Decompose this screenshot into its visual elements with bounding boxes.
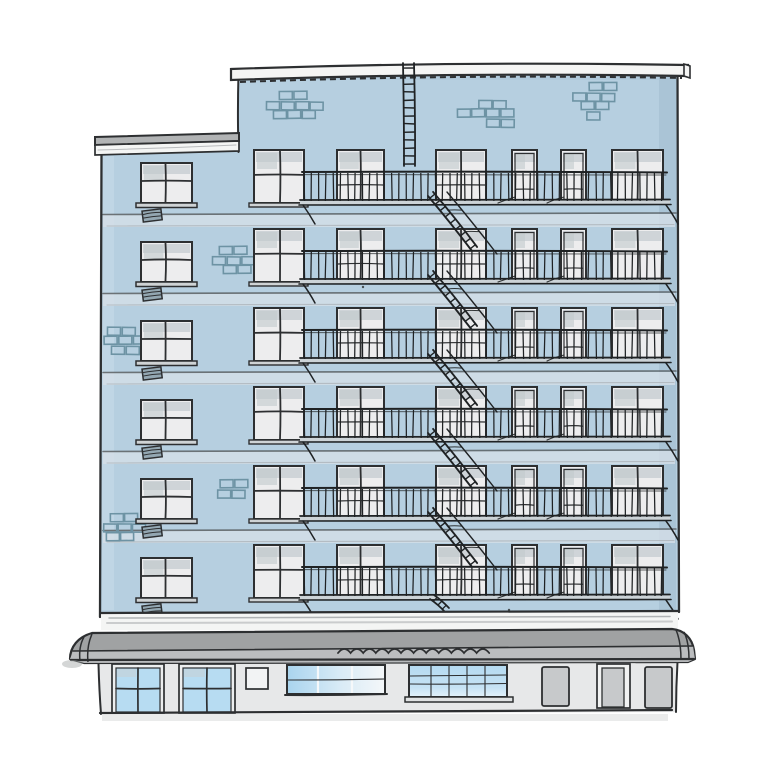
vent-body bbox=[142, 525, 162, 538]
baluster bbox=[632, 410, 633, 438]
glass-smudge bbox=[117, 669, 136, 677]
window-shade-blob bbox=[515, 390, 525, 406]
baluster bbox=[523, 252, 524, 280]
balcony-rail bbox=[302, 330, 667, 331]
baluster bbox=[392, 489, 393, 517]
vent-box bbox=[142, 367, 162, 380]
baluster bbox=[325, 410, 326, 438]
baluster bbox=[457, 252, 458, 280]
window-shade-blob bbox=[615, 232, 635, 248]
ink-speck bbox=[508, 609, 510, 611]
left-wing-cornice bbox=[95, 133, 239, 155]
balcony-rail bbox=[302, 251, 667, 252]
baluster bbox=[479, 331, 480, 359]
storefront-door bbox=[645, 667, 672, 708]
window-shade-blob bbox=[340, 311, 359, 327]
baluster bbox=[457, 489, 458, 517]
window-shade-blob bbox=[340, 390, 359, 406]
baluster bbox=[588, 568, 589, 596]
window-shade-blob bbox=[144, 403, 163, 417]
baluster bbox=[304, 252, 305, 280]
window-shade-blob bbox=[515, 469, 525, 485]
window-sill bbox=[136, 361, 197, 366]
balcony-rail-inner bbox=[303, 253, 666, 254]
baluster bbox=[544, 331, 545, 359]
baluster bbox=[392, 410, 393, 438]
baluster bbox=[325, 568, 326, 596]
baluster bbox=[325, 489, 326, 517]
storefront-wide-window bbox=[405, 665, 513, 702]
baluster bbox=[304, 489, 305, 517]
window-shade-blob bbox=[340, 153, 359, 169]
window-mullion bbox=[142, 259, 191, 260]
baluster bbox=[544, 252, 545, 280]
baluster bbox=[413, 331, 414, 359]
baluster bbox=[611, 252, 612, 280]
storefront-paned-window bbox=[179, 664, 235, 713]
window-shade-blob bbox=[439, 153, 459, 169]
illustration-canvas bbox=[0, 0, 768, 768]
floor-band bbox=[103, 213, 676, 227]
baluster bbox=[304, 331, 305, 359]
apartment-window bbox=[249, 466, 308, 523]
building-illustration bbox=[0, 0, 768, 768]
window-sill bbox=[136, 519, 197, 524]
platform-edge bbox=[300, 199, 670, 200]
baluster bbox=[435, 252, 436, 280]
baluster bbox=[523, 568, 524, 596]
baluster bbox=[567, 489, 568, 517]
baluster bbox=[479, 410, 480, 438]
window-shade-blob bbox=[564, 469, 574, 485]
window-shade-blob bbox=[257, 469, 277, 485]
storefront-framed-door bbox=[597, 664, 630, 708]
window-shade-blob bbox=[439, 232, 459, 248]
baluster bbox=[369, 410, 370, 438]
window-shade-blob bbox=[144, 324, 163, 338]
window-frame bbox=[246, 668, 268, 689]
platform-edge bbox=[300, 357, 670, 358]
baluster bbox=[500, 410, 501, 438]
awning bbox=[62, 629, 695, 668]
window-sill-line bbox=[285, 694, 387, 695]
door-panel bbox=[602, 668, 624, 707]
baluster bbox=[567, 331, 568, 359]
balcony-rail bbox=[302, 409, 667, 410]
window-shade-blob bbox=[439, 548, 459, 564]
lower-cornice-band bbox=[101, 611, 678, 630]
baluster bbox=[457, 568, 458, 596]
baluster bbox=[523, 410, 524, 438]
baluster bbox=[588, 173, 589, 201]
facade-left-edge bbox=[100, 154, 102, 617]
floor-band bbox=[103, 450, 676, 464]
window-shade-blob bbox=[615, 548, 635, 564]
window-sill bbox=[136, 440, 197, 445]
window-shade-blob bbox=[515, 311, 525, 327]
baluster bbox=[611, 410, 612, 438]
window-shade-blob bbox=[144, 245, 163, 259]
baluster bbox=[392, 173, 393, 201]
vent-body bbox=[142, 288, 162, 301]
baluster bbox=[632, 331, 633, 359]
facade-right-edge bbox=[678, 74, 680, 612]
window-shade-blob bbox=[615, 153, 635, 169]
window-frame bbox=[409, 665, 507, 697]
window-shade-blob bbox=[515, 153, 525, 169]
window-shade-blob bbox=[257, 153, 277, 169]
baluster bbox=[567, 173, 568, 201]
baluster bbox=[479, 568, 480, 596]
ladder-rail bbox=[403, 63, 404, 166]
baluster bbox=[413, 410, 414, 438]
roof-coping-end-cap bbox=[684, 64, 690, 78]
window-shade-blob bbox=[564, 232, 574, 248]
window-sill bbox=[136, 282, 197, 287]
baluster bbox=[457, 331, 458, 359]
window-shade-blob bbox=[615, 390, 635, 406]
baluster bbox=[501, 489, 502, 517]
baluster bbox=[325, 252, 326, 280]
baluster bbox=[392, 252, 393, 280]
apartment-window bbox=[249, 545, 308, 602]
balcony-rail bbox=[302, 488, 667, 489]
vent-box bbox=[142, 288, 162, 301]
baluster bbox=[611, 568, 612, 596]
awning-bottom-line bbox=[71, 659, 694, 660]
door-panel bbox=[645, 667, 672, 708]
vent-box bbox=[142, 525, 162, 538]
baluster bbox=[544, 489, 545, 517]
platform-edge bbox=[299, 599, 671, 600]
vent-body bbox=[142, 367, 162, 380]
vent-box bbox=[142, 209, 162, 222]
baluster bbox=[479, 173, 480, 201]
apartment-window bbox=[249, 387, 308, 444]
baluster bbox=[632, 252, 633, 280]
baluster bbox=[348, 252, 349, 280]
storefront-small-window bbox=[246, 668, 268, 689]
baluster bbox=[369, 331, 370, 359]
baluster bbox=[654, 173, 655, 201]
window-shade-blob bbox=[564, 548, 574, 564]
apartment-window bbox=[249, 308, 308, 365]
baluster bbox=[392, 568, 393, 596]
baluster bbox=[304, 173, 305, 201]
balcony-rail-inner bbox=[303, 569, 666, 570]
floor-band bbox=[103, 529, 676, 543]
window-shade-blob bbox=[439, 311, 459, 327]
baluster bbox=[632, 489, 633, 517]
window-shade-blob bbox=[615, 311, 635, 327]
baluster bbox=[369, 568, 370, 596]
floor-band bbox=[103, 292, 676, 306]
vent-body bbox=[142, 209, 162, 222]
window-shade-blob bbox=[564, 153, 574, 169]
ladder-rung bbox=[403, 123, 415, 124]
vent-box bbox=[142, 446, 162, 459]
baluster bbox=[413, 173, 414, 201]
baluster bbox=[567, 410, 568, 438]
platform-edge bbox=[299, 283, 671, 284]
storefront-door bbox=[542, 667, 569, 706]
baluster bbox=[325, 173, 326, 201]
ground-shadow bbox=[102, 714, 668, 721]
baluster bbox=[413, 568, 414, 596]
window-rail bbox=[410, 684, 506, 685]
window-shade-blob bbox=[515, 548, 525, 564]
balcony-rail bbox=[302, 567, 667, 568]
baluster bbox=[501, 173, 502, 201]
baluster bbox=[348, 410, 349, 438]
window-shade-blob bbox=[439, 469, 459, 485]
window-sill bbox=[136, 203, 197, 208]
window-shade-blob bbox=[515, 232, 525, 248]
platform-edge bbox=[299, 204, 671, 205]
balcony-rail-inner bbox=[303, 411, 666, 412]
window-shade-blob bbox=[439, 390, 459, 406]
platform-edge bbox=[300, 515, 670, 516]
baluster bbox=[348, 331, 349, 359]
baluster bbox=[654, 489, 655, 517]
storefront-paned-window bbox=[112, 664, 164, 713]
baluster bbox=[632, 568, 633, 596]
door-panel bbox=[542, 667, 569, 706]
window-shade-blob bbox=[257, 232, 277, 248]
apartment-window bbox=[249, 150, 308, 207]
vent-body bbox=[142, 446, 162, 459]
storefront bbox=[98, 661, 678, 721]
baluster bbox=[369, 173, 370, 201]
balcony-rail bbox=[302, 172, 667, 173]
window-mullion bbox=[437, 579, 485, 580]
window-shade-blob bbox=[340, 548, 359, 564]
baluster bbox=[523, 331, 524, 359]
window-mullion bbox=[255, 411, 303, 412]
window-shade-blob bbox=[564, 311, 574, 327]
baluster bbox=[588, 489, 589, 517]
floor-band bbox=[103, 371, 676, 385]
baluster bbox=[588, 252, 589, 280]
baluster bbox=[369, 489, 370, 517]
door-kick-rail bbox=[515, 505, 534, 506]
baluster bbox=[435, 173, 436, 201]
window-shade-blob bbox=[144, 166, 163, 180]
window-mullion bbox=[338, 263, 383, 264]
apartment-building bbox=[62, 63, 695, 721]
platform-edge bbox=[299, 362, 671, 363]
baluster bbox=[654, 331, 655, 359]
baluster bbox=[348, 568, 349, 596]
baluster bbox=[500, 252, 501, 280]
baluster bbox=[457, 173, 458, 201]
baluster bbox=[435, 410, 436, 438]
ink-speck bbox=[362, 286, 364, 288]
baluster bbox=[523, 173, 524, 201]
window-shade-blob bbox=[257, 548, 277, 564]
window-shade-blob bbox=[257, 390, 277, 406]
baluster bbox=[348, 173, 349, 201]
baluster bbox=[567, 568, 568, 596]
baluster bbox=[544, 410, 545, 438]
glass-smudge bbox=[184, 669, 205, 677]
baluster bbox=[611, 173, 612, 201]
baluster bbox=[544, 568, 545, 596]
baluster bbox=[611, 331, 612, 359]
baluster bbox=[479, 252, 480, 280]
window-sill bbox=[405, 697, 513, 702]
baluster bbox=[501, 331, 502, 359]
baluster bbox=[567, 252, 568, 280]
baluster bbox=[632, 173, 633, 201]
baluster bbox=[304, 410, 305, 438]
baluster bbox=[654, 252, 655, 280]
window-shade-blob bbox=[144, 561, 163, 575]
storefront-right-edge bbox=[676, 662, 678, 712]
window-shade-blob bbox=[257, 311, 277, 327]
platform-edge bbox=[299, 520, 671, 521]
baluster bbox=[348, 489, 349, 517]
baluster bbox=[544, 173, 545, 201]
apartment-window bbox=[436, 150, 486, 203]
baluster bbox=[304, 568, 305, 596]
baluster bbox=[392, 331, 393, 359]
window-shade-blob bbox=[144, 482, 163, 496]
baluster bbox=[435, 568, 436, 596]
baluster bbox=[413, 489, 414, 517]
baluster bbox=[654, 568, 655, 596]
baluster bbox=[588, 410, 589, 438]
baluster bbox=[457, 410, 458, 438]
window-shade-blob bbox=[340, 469, 359, 485]
window-shade-blob bbox=[564, 390, 574, 406]
window-sill bbox=[136, 598, 197, 603]
baluster bbox=[369, 252, 370, 280]
baluster bbox=[479, 489, 480, 517]
window-shade-blob bbox=[340, 232, 359, 248]
baluster bbox=[500, 568, 501, 596]
window-shade-blob bbox=[615, 469, 635, 485]
baluster bbox=[654, 410, 655, 438]
platform-edge bbox=[299, 441, 671, 442]
baluster bbox=[325, 331, 326, 359]
baluster bbox=[588, 331, 589, 359]
baluster bbox=[523, 489, 524, 517]
storefront-wide-window bbox=[285, 665, 387, 695]
awning-shadow-smudge bbox=[62, 660, 82, 668]
baluster bbox=[611, 489, 612, 517]
baluster bbox=[413, 252, 414, 280]
apartment-window bbox=[249, 229, 308, 286]
